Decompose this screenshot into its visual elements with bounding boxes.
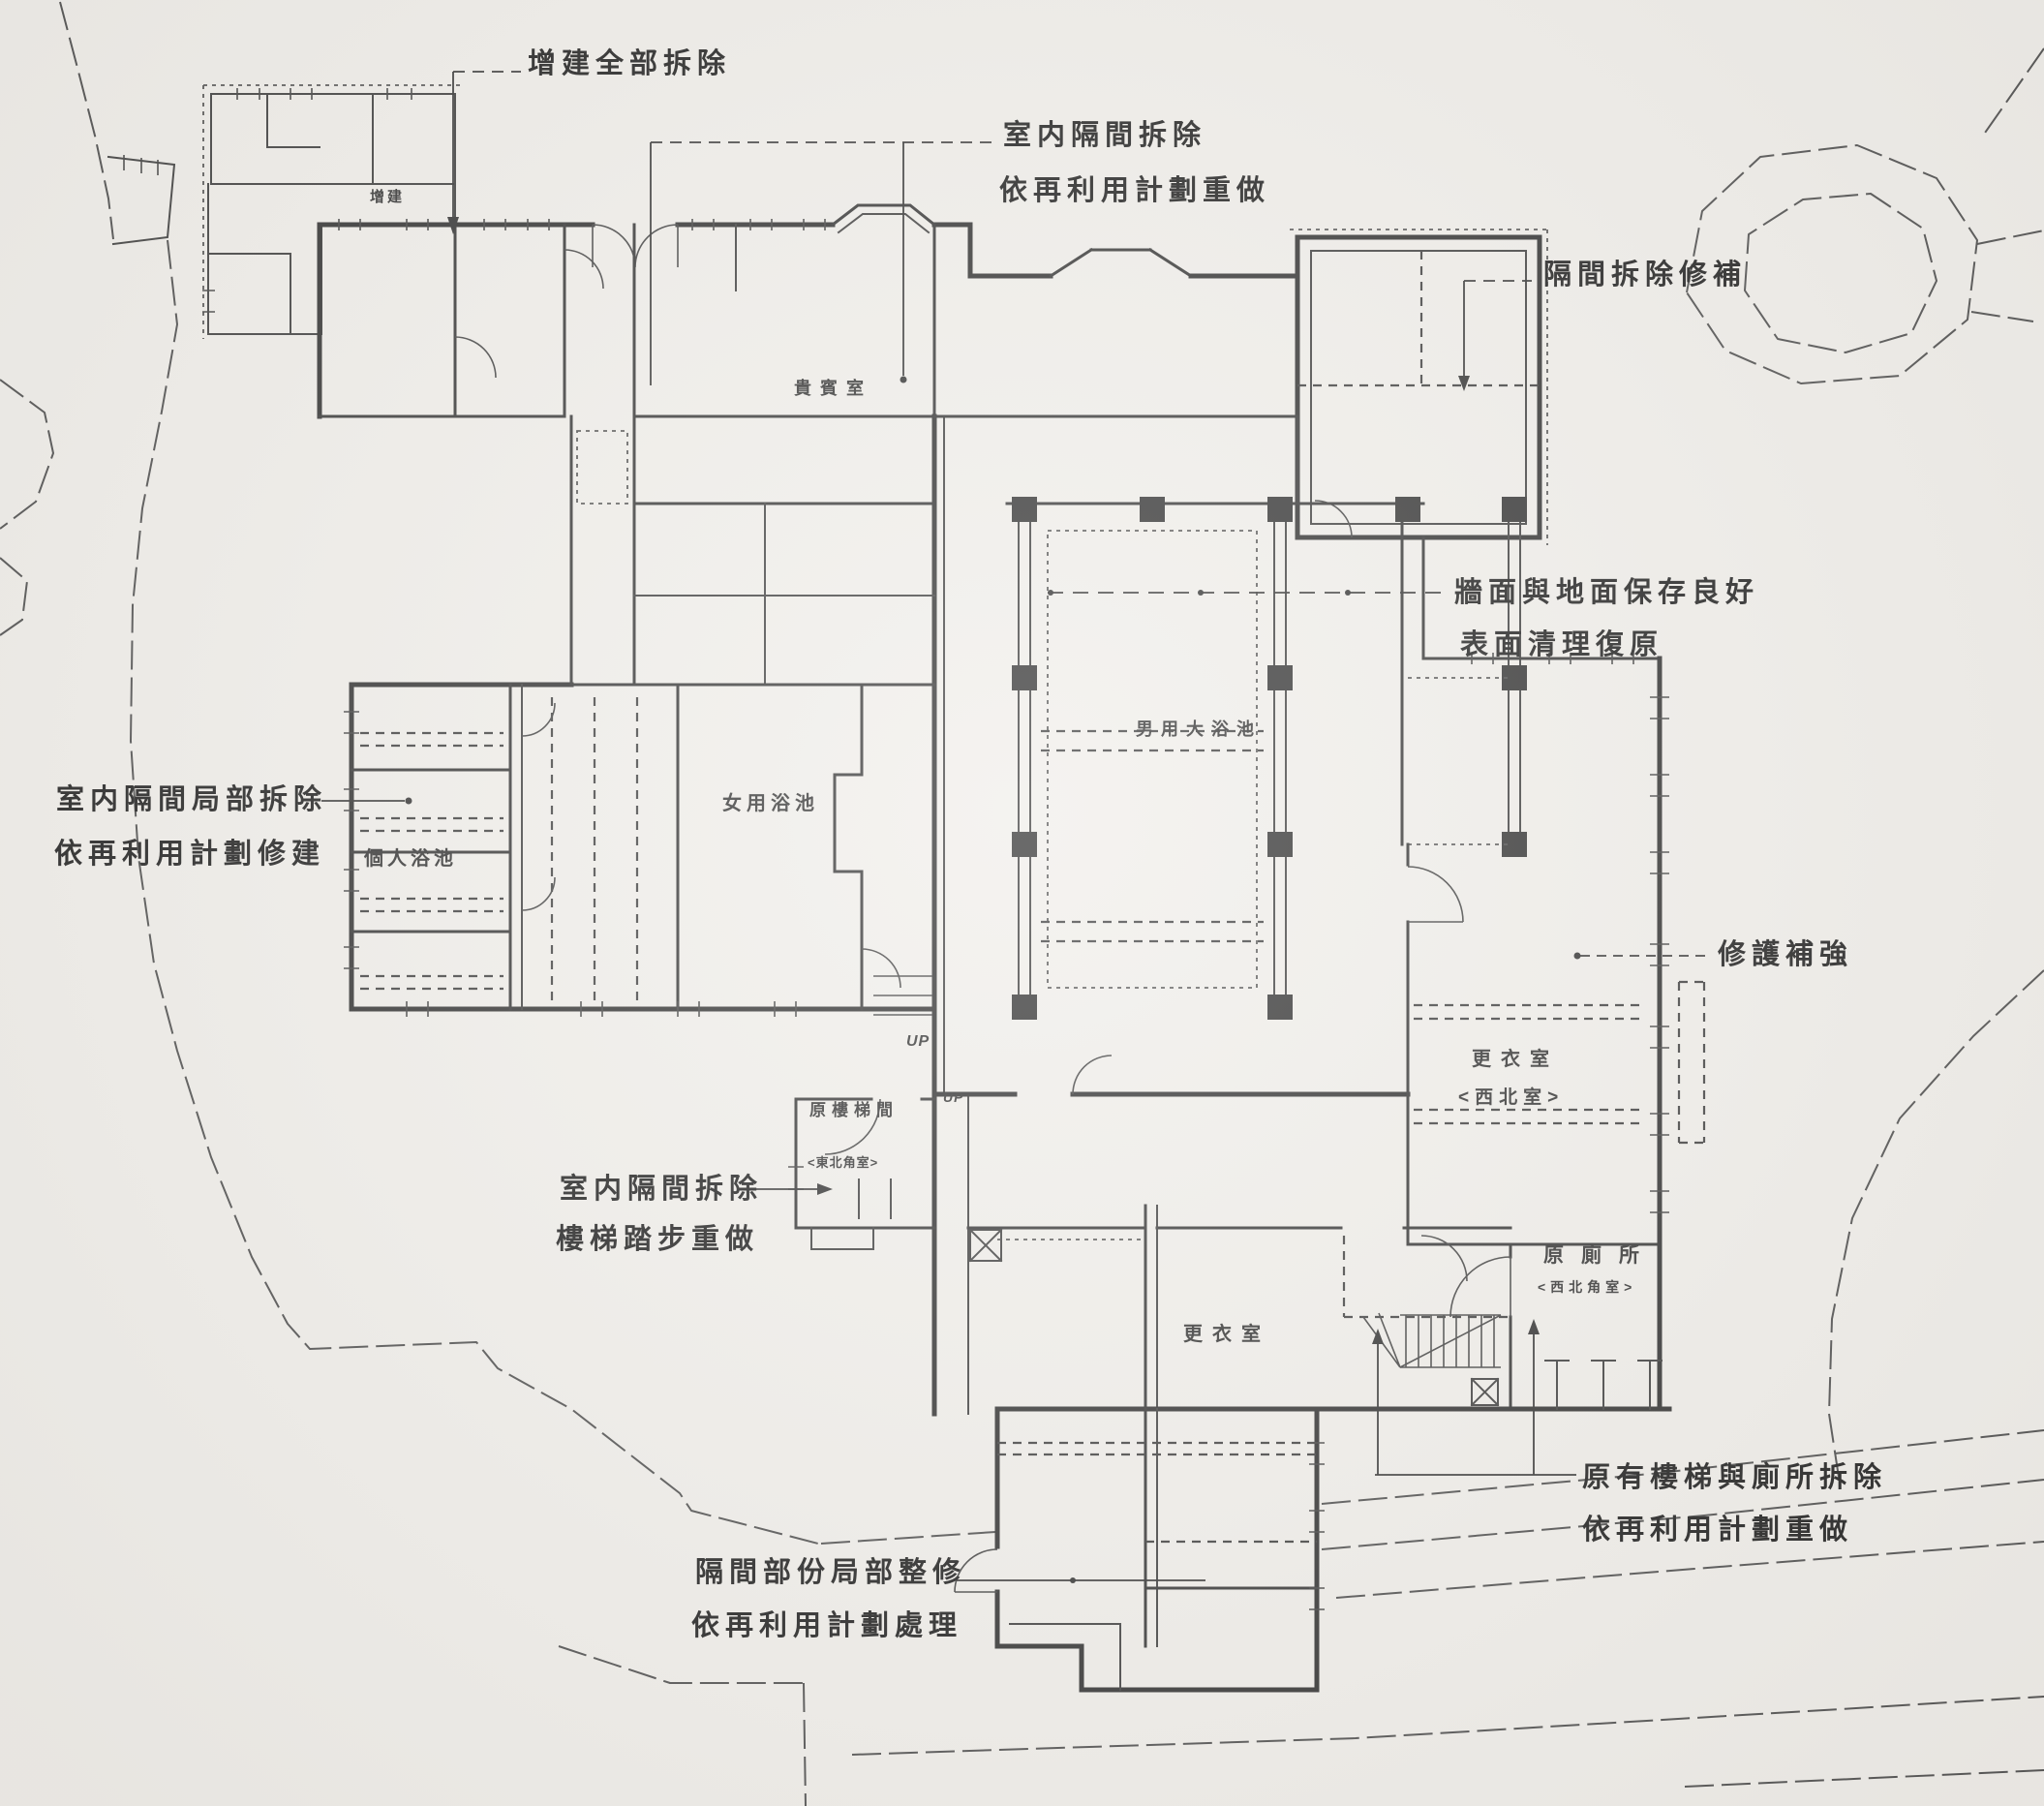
annotation-wall-floor-preserved-line2: 表面清理復原 xyxy=(1460,631,1663,659)
bottom-band xyxy=(968,1206,1669,1409)
bath-wing xyxy=(344,416,934,1017)
floor-plan-sheet: 增建全部拆除 室内隔間拆除 依再利用計劃重做 隔間拆除修補 牆面與地面保存良好 … xyxy=(0,0,2044,1806)
room-label-mens-bath: 男用大浴池 xyxy=(1136,720,1262,738)
upper-wing xyxy=(320,205,1297,504)
east-wing xyxy=(1408,653,1704,1244)
annotation-stair-partition-demolish-line2: 樓梯踏步重做 xyxy=(556,1226,759,1254)
room-label-dressing-room-east-sub: <西北室> xyxy=(1458,1088,1564,1107)
addition-block xyxy=(202,85,461,339)
room-label-stair-hall-sub: <東北角室> xyxy=(808,1156,878,1169)
room-label-dressing-room-south: 更衣室 xyxy=(1183,1325,1270,1344)
annotation-partition-partial-renovation: 隔間部份局部整修 xyxy=(695,1559,966,1587)
annotation-stair-partition-demolish: 室内隔間拆除 xyxy=(560,1176,763,1204)
crossed-box-icon-2 xyxy=(1472,1379,1498,1405)
annotation-original-stair-toilet-demolish-line2: 依再利用計劃重做 xyxy=(1582,1516,1853,1545)
annotation-partition-partial-renovation-line2: 依再利用計劃處理 xyxy=(691,1612,962,1640)
annotation-partition-demolish-repair: 隔間拆除修補 xyxy=(1543,261,1747,290)
room-label-stair-hall: 原樓梯間 xyxy=(809,1102,899,1118)
annotation-demolish-addition: 增建全部拆除 xyxy=(528,50,731,78)
crossed-box-icon xyxy=(970,1230,1001,1261)
room-label-toilet-sub: <西北角室> xyxy=(1538,1280,1636,1294)
room-label-dressing-room-east: 更衣室 xyxy=(1472,1050,1559,1069)
main-hall xyxy=(934,416,1527,1414)
room-label-toilet: 原廁所 xyxy=(1543,1245,1657,1266)
annotation-partial-partition-demolish: 室内隔間局部拆除 xyxy=(56,786,327,814)
room-label-private-bath: 個人浴池 xyxy=(364,849,457,869)
annotation-wall-floor-preserved: 牆面與地面保存良好 xyxy=(1454,579,1759,607)
room-label-vip-room: 貴賓室 xyxy=(794,380,872,397)
building-walls xyxy=(202,85,1704,1690)
bottom-wing xyxy=(955,1409,1325,1690)
annotation-partial-partition-demolish-line2: 依再利用計劃修建 xyxy=(54,841,325,869)
room-label-addition: 增建 xyxy=(370,190,405,204)
up-label-1: UP xyxy=(906,1034,930,1050)
up-label-2: UP xyxy=(943,1090,963,1104)
annotation-repair-reinforce: 修護補強 xyxy=(1718,941,1853,969)
annotation-original-stair-toilet-demolish: 原有樓梯與廁所拆除 xyxy=(1582,1464,1887,1492)
leader-lines xyxy=(321,72,1712,1583)
room-label-womens-bath: 女用浴池 xyxy=(722,794,819,813)
annotation-interior-partition-demolish-top: 室内隔間拆除 xyxy=(1003,122,1206,150)
annotation-interior-partition-demolish-top-line2: 依再利用計劃重做 xyxy=(999,177,1270,205)
